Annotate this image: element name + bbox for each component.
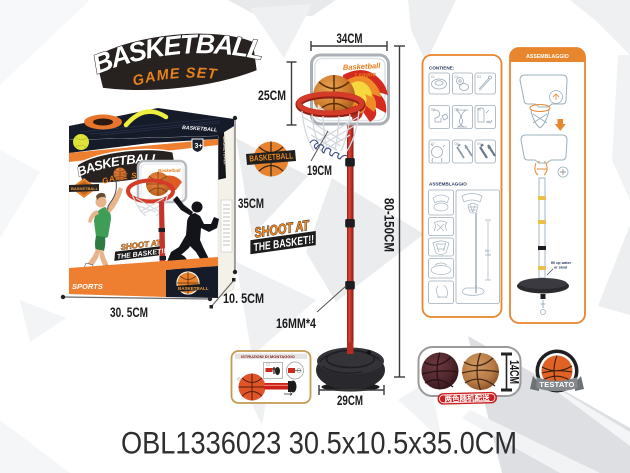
svg-text:02: 02: [455, 75, 459, 79]
svg-text:29CM: 29CM: [337, 392, 363, 408]
svg-text:fill up water: fill up water: [551, 261, 572, 265]
svg-text:BASKETBALL: BASKETBALL: [71, 186, 99, 191]
svg-text:3+: 3+: [195, 143, 203, 150]
svg-text:ISTRUZIONI DI MONTAGGIO: ISTRUZIONI DI MONTAGGIO: [241, 354, 295, 359]
svg-text:16MM*4: 16MM*4: [276, 315, 316, 331]
svg-text:SPORTS: SPORTS: [72, 282, 103, 291]
svg-text:Basketball: Basketball: [158, 168, 181, 173]
svg-text:80-150CM: 80-150CM: [382, 198, 398, 252]
svg-text:34CM: 34CM: [337, 30, 363, 46]
svg-text:19CM: 19CM: [307, 162, 332, 178]
svg-text:08: 08: [455, 142, 459, 146]
svg-text:ASSEMBLAGGIO: ASSEMBLAGGIO: [526, 54, 569, 60]
svg-text:14CM: 14CM: [507, 360, 521, 384]
svg-text:OBL1336023 30.5x10.5x35.0CM: OBL1336023 30.5x10.5x35.0CM: [121, 425, 517, 461]
svg-text:30. 5CM: 30. 5CM: [110, 304, 148, 320]
svg-text:05: 05: [455, 108, 459, 112]
svg-text:35CM: 35CM: [238, 195, 264, 211]
svg-text:BASKETBALL: BASKETBALL: [178, 286, 209, 291]
svg-text:League: League: [355, 72, 377, 79]
svg-text:04: 04: [431, 108, 435, 112]
svg-text:09: 09: [477, 142, 481, 146]
svg-text:03: 03: [477, 75, 481, 79]
svg-text:06: 06: [477, 108, 481, 112]
svg-text:BASKETBALL: BASKETBALL: [222, 136, 228, 165]
svg-text:两色随机配送: 两色随机配送: [444, 392, 490, 403]
svg-text:07: 07: [431, 142, 435, 146]
svg-text:CONTIENE:: CONTIENE:: [429, 66, 455, 71]
svg-text:TESTATO: TESTATO: [539, 380, 574, 389]
svg-text:or sand: or sand: [554, 266, 567, 270]
svg-text:01: 01: [431, 75, 435, 79]
svg-text:150: 150: [485, 253, 491, 257]
svg-text:25CM: 25CM: [258, 87, 286, 103]
svg-text:ASSEMBLAGGIO: ASSEMBLAGGIO: [429, 182, 467, 187]
svg-text:10. 5CM: 10. 5CM: [223, 291, 264, 306]
